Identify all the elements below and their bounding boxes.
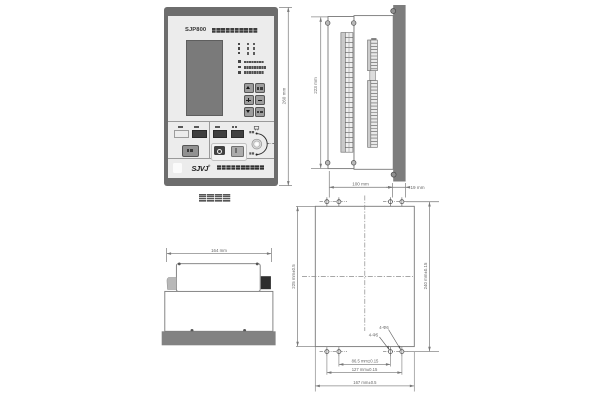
svg-text:167 mm±0.5: 167 mm±0.5	[353, 380, 377, 385]
svg-text:86.5 mm±0.15: 86.5 mm±0.15	[352, 359, 379, 364]
svg-text:100 mm: 100 mm	[352, 181, 369, 186]
svg-text:4-Φ6: 4-Φ6	[379, 325, 389, 330]
svg-text:260 mm: 260 mm	[282, 88, 287, 105]
svg-text:4-Φ5: 4-Φ5	[369, 332, 379, 337]
svg-text:19 mm: 19 mm	[411, 185, 425, 190]
svg-text:127 mm±0.15: 127 mm±0.15	[352, 367, 378, 372]
svg-text:223 mm: 223 mm	[313, 77, 318, 94]
svg-text:164 mm: 164 mm	[211, 248, 227, 253]
svg-text:240 mm±0.15: 240 mm±0.15	[423, 262, 428, 289]
svg-text:225 mm±0.5: 225 mm±0.5	[291, 264, 296, 289]
